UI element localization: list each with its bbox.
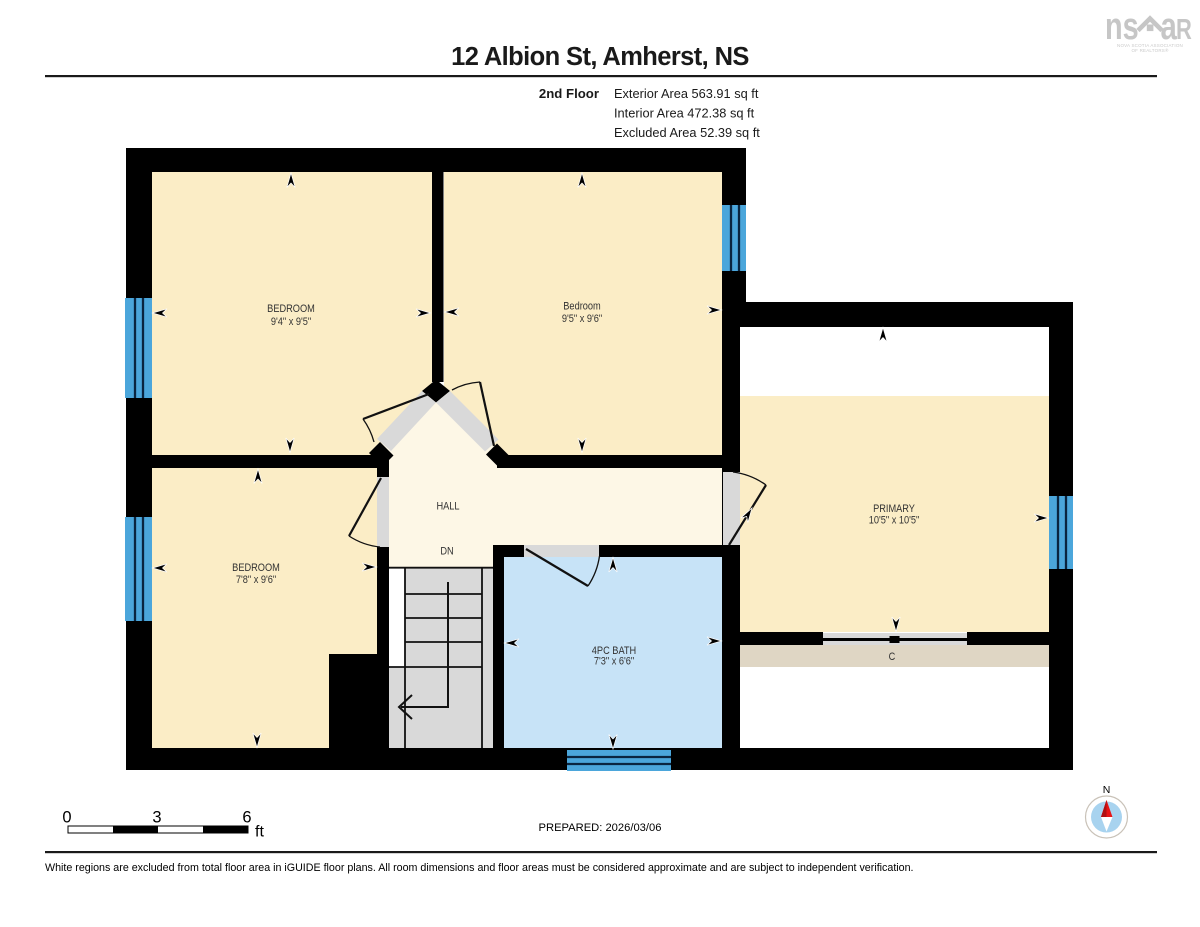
svg-text:PRIMARY: PRIMARY: [873, 503, 915, 515]
svg-text:3: 3: [152, 809, 161, 827]
svg-text:NOVA SCOTIA ASSOCIATION: NOVA SCOTIA ASSOCIATION: [1117, 43, 1183, 48]
svg-text:N: N: [1103, 784, 1111, 796]
svg-text:C: C: [889, 651, 896, 663]
svg-text:6: 6: [242, 809, 251, 827]
svg-text:BEDROOM: BEDROOM: [232, 562, 280, 574]
svg-text:Exterior Area 563.91 sq ft: Exterior Area 563.91 sq ft: [614, 86, 759, 101]
svg-text:2nd Floor: 2nd Floor: [539, 86, 599, 101]
svg-text:0: 0: [62, 809, 71, 827]
svg-text:9'5" x 9'6": 9'5" x 9'6": [562, 313, 603, 325]
svg-text:ft: ft: [255, 824, 264, 841]
svg-text:DN: DN: [440, 546, 453, 558]
svg-text:9'4" x 9'5": 9'4" x 9'5": [271, 316, 312, 328]
svg-text:PREPARED: 2026/03/06: PREPARED: 2026/03/06: [539, 822, 662, 834]
svg-text:7'8" x 9'6": 7'8" x 9'6": [236, 574, 277, 586]
svg-text:ns: ns: [1105, 5, 1139, 48]
svg-text:White regions are excluded fro: White regions are excluded from total fl…: [45, 862, 914, 874]
svg-text:7'3" x 6'6": 7'3" x 6'6": [594, 656, 635, 668]
svg-text:Excluded Area 52.39 sq ft: Excluded Area 52.39 sq ft: [614, 125, 760, 140]
svg-text:12 Albion St, Amherst, NS: 12 Albion St, Amherst, NS: [451, 43, 749, 71]
svg-text:10'5" x 10'5": 10'5" x 10'5": [869, 515, 920, 527]
svg-text:OF REALTORS®: OF REALTORS®: [1131, 47, 1169, 53]
svg-text:BEDROOM: BEDROOM: [267, 303, 315, 315]
svg-text:Interior Area 472.38 sq ft: Interior Area 472.38 sq ft: [614, 106, 755, 121]
svg-text:Bedroom: Bedroom: [563, 301, 600, 313]
svg-text:HALL: HALL: [436, 501, 459, 513]
